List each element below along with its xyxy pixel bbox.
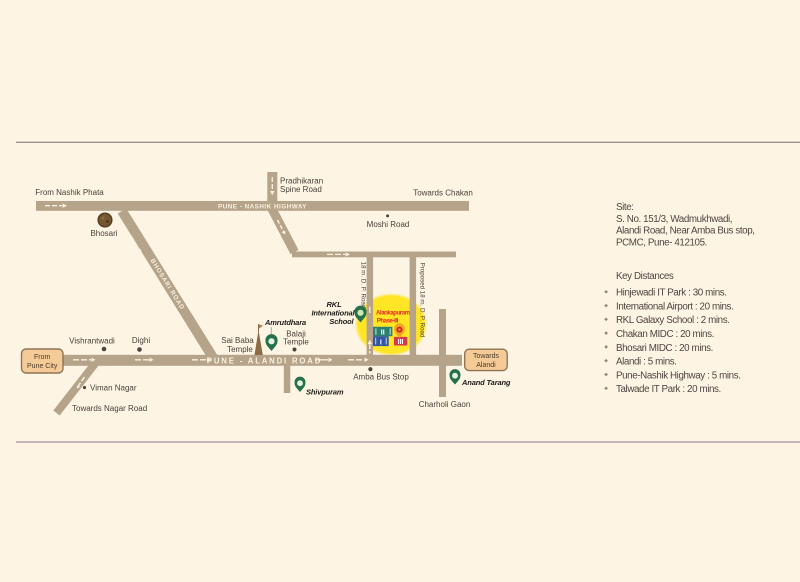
- svg-text:Amrutdhara: Amrutdhara: [264, 318, 306, 327]
- svg-text:S. No. 151/3, Wadmukhwadi,: S. No. 151/3, Wadmukhwadi,: [616, 214, 732, 225]
- svg-text:Sai Baba: Sai Baba: [221, 336, 254, 345]
- svg-text:III: III: [398, 339, 404, 346]
- svg-text:Vishrantwadi: Vishrantwadi: [69, 337, 115, 346]
- svg-text:Alandi Road, Near Amba Bus sto: Alandi Road, Near Amba Bus stop,: [616, 226, 755, 237]
- svg-text:Temple: Temple: [283, 338, 309, 347]
- svg-text:Moshi Road: Moshi Road: [367, 220, 410, 229]
- svg-text:Towards Nagar Road: Towards Nagar Road: [72, 404, 147, 413]
- svg-text:PUNE - NASHIK HIGHWAY: PUNE - NASHIK HIGHWAY: [218, 203, 307, 210]
- svg-text:Bhosari: Bhosari: [90, 229, 117, 238]
- svg-text:Chakan MIDC : 20 mins.: Chakan MIDC : 20 mins.: [616, 329, 714, 340]
- svg-text:I: I: [380, 339, 382, 346]
- svg-text:PUNE - ALANDI ROAD: PUNE - ALANDI ROAD: [207, 357, 322, 366]
- svg-text:RKL Galaxy School : 2 mins.: RKL Galaxy School : 2 mins.: [616, 315, 730, 326]
- svg-text:International Airport : 20 min: International Airport : 20 mins.: [616, 301, 733, 312]
- svg-text:Towards: Towards: [473, 353, 500, 360]
- svg-text:Key Distances: Key Distances: [616, 271, 674, 282]
- svg-text:Dighi: Dighi: [132, 336, 150, 345]
- svg-text:Pune City: Pune City: [27, 363, 58, 370]
- svg-text:Hinjewadi IT Park : 30 mins.: Hinjewadi IT Park : 30 mins.: [616, 288, 727, 299]
- svg-text:Viman Nagar: Viman Nagar: [90, 384, 137, 393]
- svg-text:Alandi : 5 mins.: Alandi : 5 mins.: [616, 357, 677, 368]
- svg-text:PCMC, Pune- 412105.: PCMC, Pune- 412105.: [616, 237, 707, 248]
- svg-text:Phase-III: Phase-III: [377, 318, 399, 324]
- svg-text:Pune-Nashik Highway : 5 mins.: Pune-Nashik Highway : 5 mins.: [616, 370, 741, 381]
- svg-text:Spine Road: Spine Road: [280, 185, 322, 194]
- svg-text:Bhosari MIDC : 20 mins.: Bhosari MIDC : 20 mins.: [616, 343, 713, 354]
- svg-text:Charholi Gaon: Charholi Gaon: [419, 400, 471, 409]
- svg-text:Towards Chakan: Towards Chakan: [413, 189, 473, 198]
- svg-text:Alandi: Alandi: [476, 362, 496, 369]
- svg-text:From Nashik Phata: From Nashik Phata: [35, 188, 104, 197]
- svg-text:Anand Tarang: Anand Tarang: [461, 378, 511, 387]
- svg-text:Amba Bus Stop: Amba Bus Stop: [353, 373, 409, 382]
- svg-text:From: From: [34, 354, 51, 361]
- svg-text:School: School: [329, 317, 354, 326]
- svg-text:Shivpuram: Shivpuram: [306, 388, 344, 397]
- svg-text:Proposed 18 m. D. P. Road: Proposed 18 m. D. P. Road: [419, 263, 426, 338]
- svg-text:Talwade IT Park : 20 mins.: Talwade IT Park : 20 mins.: [616, 384, 721, 395]
- svg-text:II: II: [381, 330, 385, 337]
- svg-text:Temple: Temple: [227, 345, 253, 354]
- svg-text:18 m. D. P. Road: 18 m. D. P. Road: [359, 262, 366, 309]
- svg-text:Alankapuram: Alankapuram: [376, 310, 410, 316]
- svg-text:Site:: Site:: [616, 202, 634, 213]
